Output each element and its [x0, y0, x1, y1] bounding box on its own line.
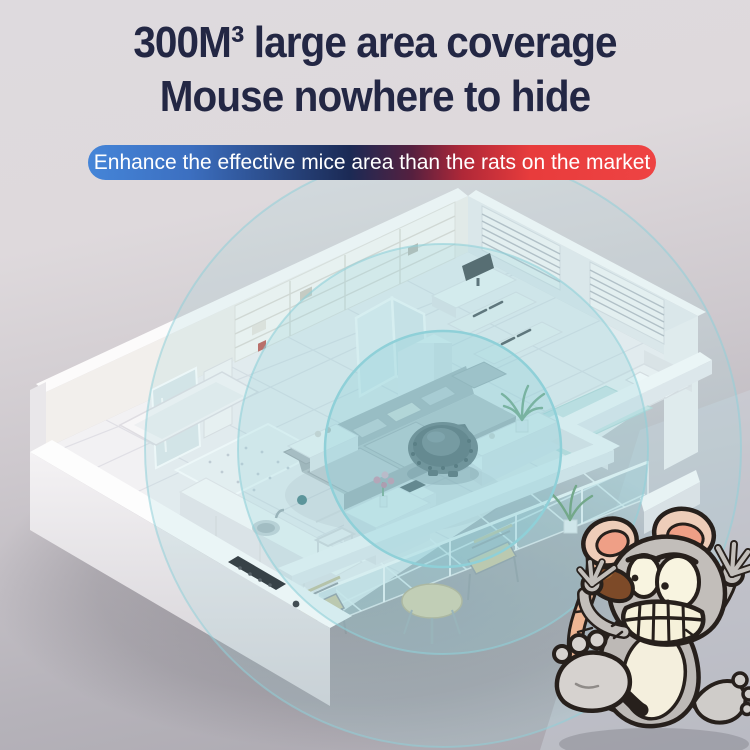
subtitle-banner: Enhance the effective mice area than the…: [88, 145, 656, 180]
ad-image: 300M³ large area coverage Mouse nowhere …: [0, 0, 750, 750]
headline-line1: 300M³ large area coverage: [30, 16, 720, 70]
headline-line2: Mouse nowhere to hide: [30, 70, 720, 124]
subtitle-text: Enhance the effective mice area than the…: [94, 151, 650, 175]
headline: 300M³ large area coverage Mouse nowhere …: [0, 16, 750, 123]
coverage-ring-inner: [325, 331, 561, 567]
mouse-mouth: [623, 601, 703, 643]
